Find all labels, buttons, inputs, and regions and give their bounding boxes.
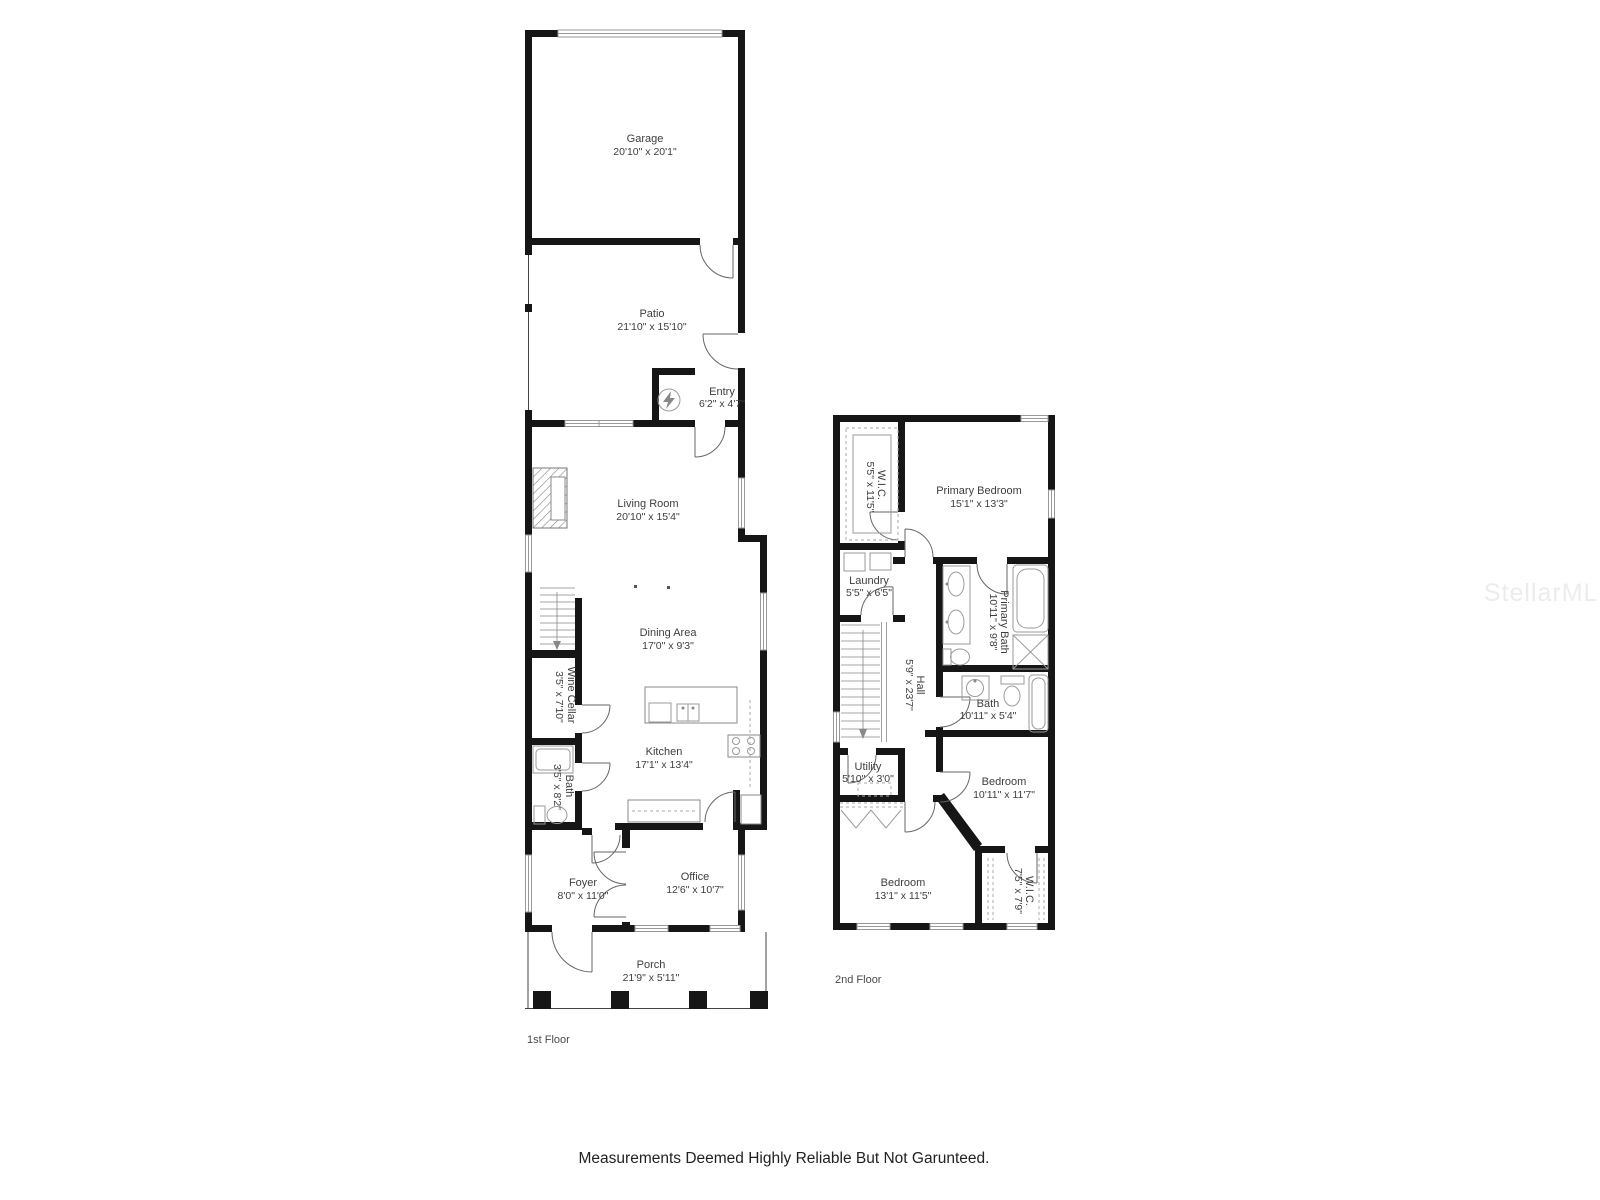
garage-dims: 20'10" x 20'1"	[613, 146, 677, 158]
wine-cellar-dims: 3'5" x 7'10"	[553, 671, 565, 723]
staircase-first-floor	[540, 588, 575, 650]
room-porch: Porch 21'9" x 5'11"	[623, 959, 680, 984]
patio-label: Patio	[639, 308, 664, 320]
room-bath-second: Bath 10'11" x 5'4"	[960, 698, 1017, 722]
hall-bath-fixtures	[962, 675, 1048, 732]
utility-label: Utility	[855, 761, 882, 773]
room-laundry: Laundry 5'5" x 6'5"	[846, 575, 892, 599]
bath-first-dims: 3'5" x 8'2"	[551, 764, 563, 810]
hall-dims: 5'9" x 23'7"	[903, 659, 915, 711]
bathtub-icon	[1029, 675, 1048, 732]
closet-rod-and-bifold	[840, 803, 903, 828]
floor-plan-canvas: Garage 20'10" x 20'1" Patio 21'10" x 15'…	[0, 0, 1600, 1200]
bath-second-label: Bath	[977, 698, 1000, 710]
room-bedroom-left: Bedroom 13'1" x 11'5"	[875, 877, 932, 902]
primary-bath-dims: 10'11" x 9'8"	[987, 594, 999, 651]
room-hall: Hall 5'9" x 23'7"	[903, 659, 926, 711]
bedroom-left-dims: 13'1" x 11'5"	[875, 890, 932, 902]
office-label: Office	[681, 871, 710, 883]
staircase-second-floor	[841, 622, 887, 742]
second-floor-label: 2nd Floor	[835, 974, 882, 986]
room-wic-secondary: W.I.C. 7'5" x 7'9"	[1012, 868, 1035, 914]
electrical-panel-icon	[658, 389, 680, 411]
laundry-dims: 5'5" x 6'5"	[846, 587, 892, 599]
kitchen-island	[645, 687, 737, 723]
garage-label: Garage	[627, 133, 664, 145]
room-wic-primary: W.I.C. 5'5" x 11'5"	[864, 462, 887, 513]
bath-first-label: Bath	[563, 775, 575, 798]
room-wine-cellar: Wine Cellar 3'5" x 7'10"	[553, 667, 577, 724]
laundry-label: Laundry	[849, 575, 889, 587]
fireplace-icon	[533, 468, 567, 528]
wic-primary-dims: 5'5" x 11'5"	[864, 462, 876, 513]
bedroom-left-label: Bedroom	[881, 877, 926, 889]
toilet-icon	[943, 649, 970, 665]
dining-area-dims: 17'0" x 9'3"	[642, 640, 694, 652]
patio-dims: 21'10" x 15'10"	[617, 321, 687, 333]
bedroom-right-label: Bedroom	[982, 776, 1027, 788]
room-dining-area: Dining Area 17'0" x 9'3"	[640, 627, 698, 652]
foyer-label: Foyer	[569, 877, 597, 889]
primary-bedroom-label: Primary Bedroom	[936, 485, 1022, 497]
porch-label: Porch	[637, 959, 666, 971]
room-patio: Patio 21'10" x 15'10"	[617, 308, 687, 333]
floor-plan-page: Garage 20'10" x 20'1" Patio 21'10" x 15'…	[0, 0, 1600, 1200]
room-office: Office 12'6" x 10'7"	[666, 871, 724, 896]
office-dims: 12'6" x 10'7"	[666, 884, 724, 896]
toilet-icon	[1001, 676, 1024, 706]
shower-icon	[1013, 635, 1048, 669]
dryer-icon	[870, 553, 891, 570]
room-living-room: Living Room 20'10" x 15'4"	[616, 498, 680, 523]
entry-label: Entry	[709, 386, 735, 398]
bathroom-sink-icon	[946, 572, 965, 596]
bathtub-icon	[1013, 565, 1048, 632]
room-garage: Garage 20'10" x 20'1"	[613, 133, 677, 158]
washer-icon	[844, 553, 865, 571]
foyer-dims: 8'0" x 11'0"	[558, 890, 609, 902]
wic-secondary-dims: 7'5" x 7'9"	[1012, 868, 1024, 914]
room-primary-bedroom: Primary Bedroom 15'1" x 13'3"	[936, 485, 1022, 510]
room-kitchen: Kitchen 17'1" x 13'4"	[635, 746, 693, 771]
bathroom-sink-icon	[946, 610, 965, 634]
bath-second-dims: 10'11" x 5'4"	[960, 710, 1017, 722]
room-bedroom-right: Bedroom 10'11" x 11'7"	[973, 776, 1035, 801]
room-bath-first: Bath 3'5" x 8'2"	[551, 764, 575, 810]
disclaimer-text: Measurements Deemed Highly Reliable But …	[579, 1150, 990, 1167]
room-primary-bath: Primary Bath 10'11" x 9'8"	[987, 590, 1010, 654]
utility-dims: 5'10" x 3'0"	[842, 773, 894, 785]
stellar-mls-watermark: StellarMLS	[1484, 579, 1600, 607]
room-foyer: Foyer 8'0" x 11'0"	[558, 877, 609, 902]
bedroom-right-dims: 10'11" x 11'7"	[973, 789, 1035, 801]
porch-dims: 21'9" x 5'11"	[623, 972, 680, 984]
wine-cellar-label: Wine Cellar	[565, 667, 577, 724]
primary-bedroom-dims: 15'1" x 13'3"	[950, 498, 1008, 510]
living-room-label: Living Room	[617, 498, 678, 510]
first-floor-plan: Garage 20'10" x 20'1" Patio 21'10" x 15'…	[525, 30, 768, 1046]
first-floor-label: 1st Floor	[527, 1034, 570, 1046]
kitchen-label: Kitchen	[646, 746, 683, 758]
entry-dims: 6'2" x 4'7"	[699, 398, 745, 410]
living-room-dims: 20'10" x 15'4"	[616, 511, 680, 523]
room-utility: Utility 5'10" x 3'0"	[842, 761, 894, 785]
kitchen-dims: 17'1" x 13'4"	[635, 759, 693, 771]
bathroom-sink-icon	[962, 676, 989, 700]
stove-icon	[728, 735, 760, 757]
dining-area-label: Dining Area	[640, 627, 698, 639]
second-floor-plan: W.I.C. 5'5" x 11'5" Primary Bedroom 15'1…	[833, 415, 1055, 986]
